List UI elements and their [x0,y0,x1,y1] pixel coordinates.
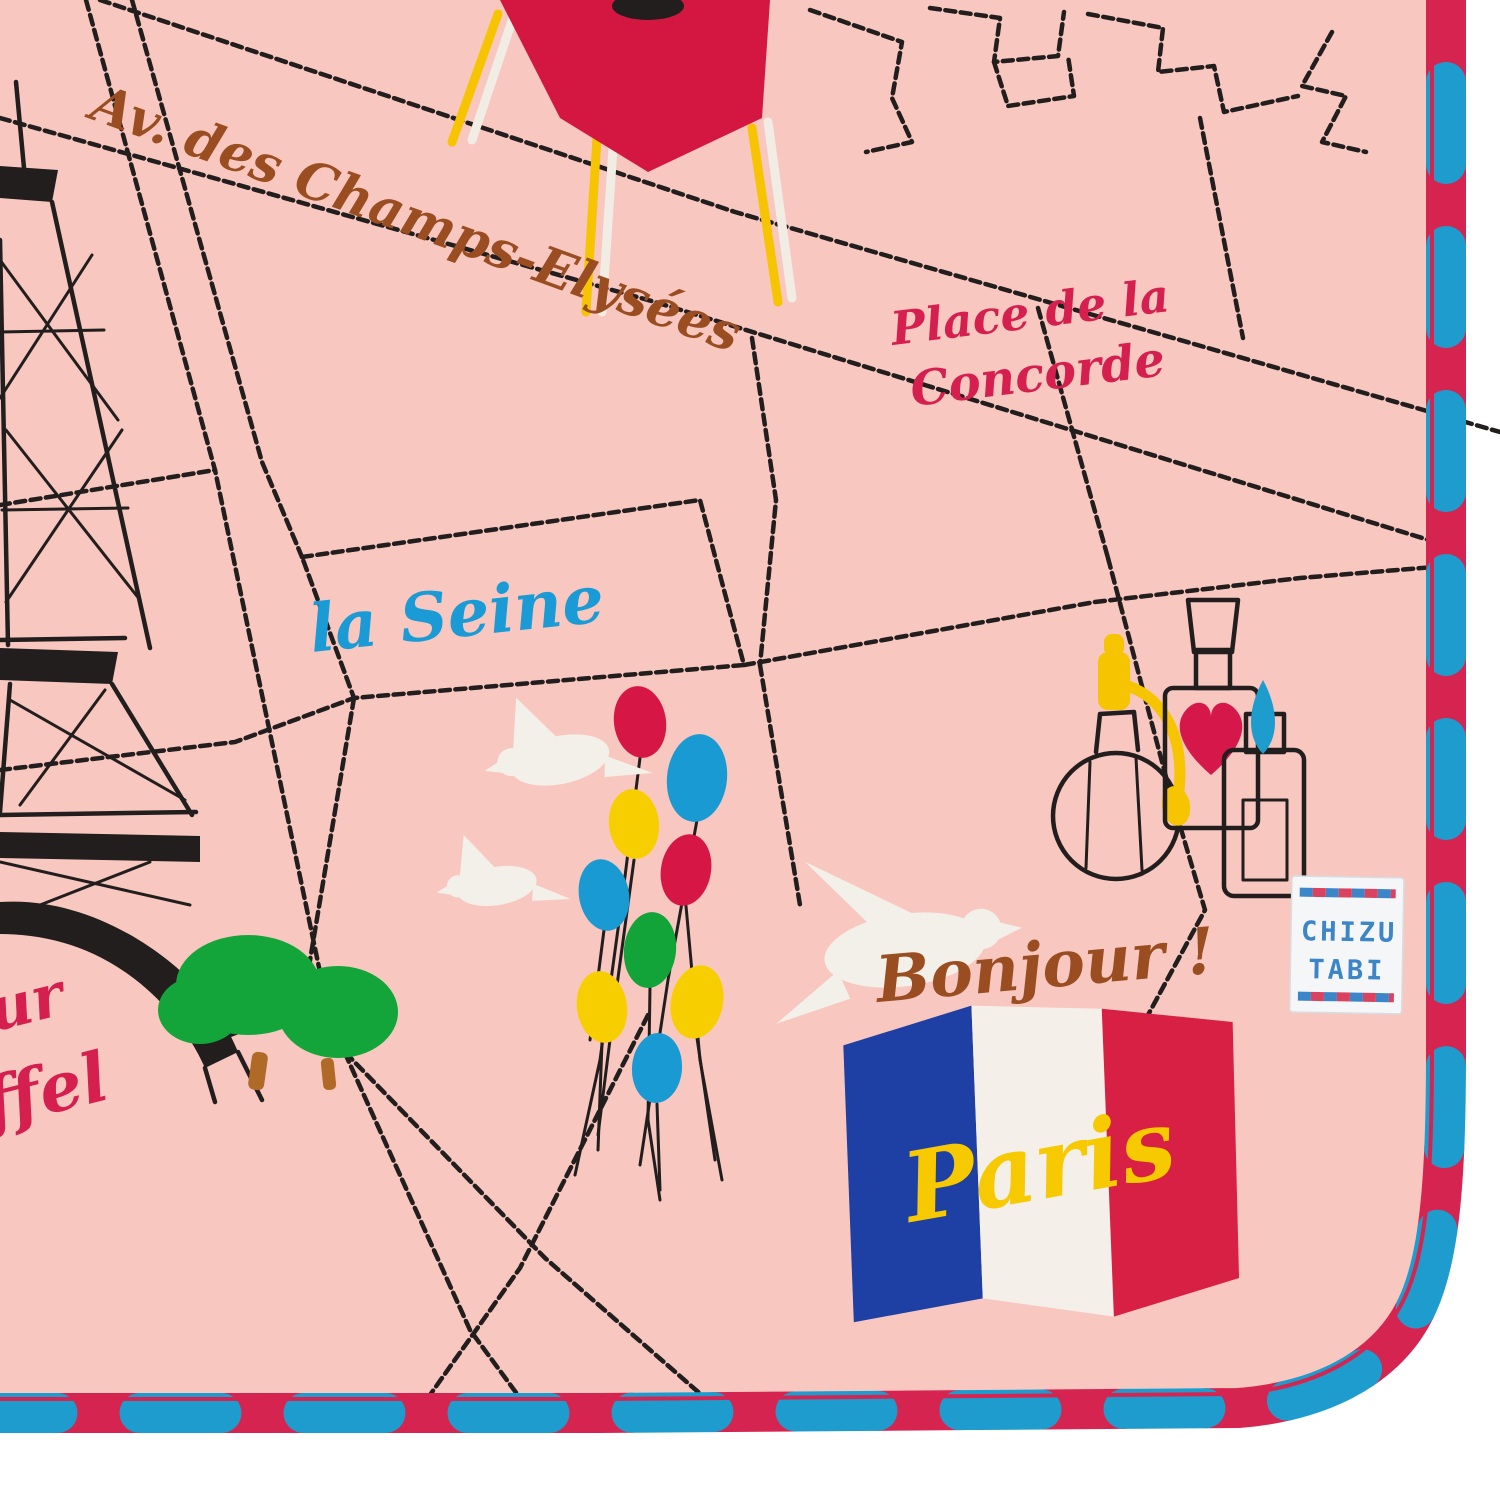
round-bottle-stopper [1098,652,1130,710]
brand-name-line2: TABI [1308,954,1386,986]
embroidered-paris-map-towel-photo: Paris Av. des Champs-Elysées Place de la… [0,0,1500,1500]
tree-canopy-right [278,966,398,1058]
brand-name-line1: CHIZU [1301,916,1398,949]
round-bottle-knob [1104,634,1124,656]
brand-tag: CHIZU TABI [1290,876,1404,1014]
tree-canopy-small [158,976,242,1044]
towel-illustration: Paris Av. des Champs-Elysées Place de la… [0,0,1500,1500]
eiffel-top-platform [0,166,58,202]
eiffel-first-floor-line [0,812,196,815]
eiffel-first-floor [0,832,200,862]
eiffel-mid-line [0,638,125,640]
french-flag: Paris [838,992,1248,1330]
eiffel-mid-platform [0,648,118,684]
